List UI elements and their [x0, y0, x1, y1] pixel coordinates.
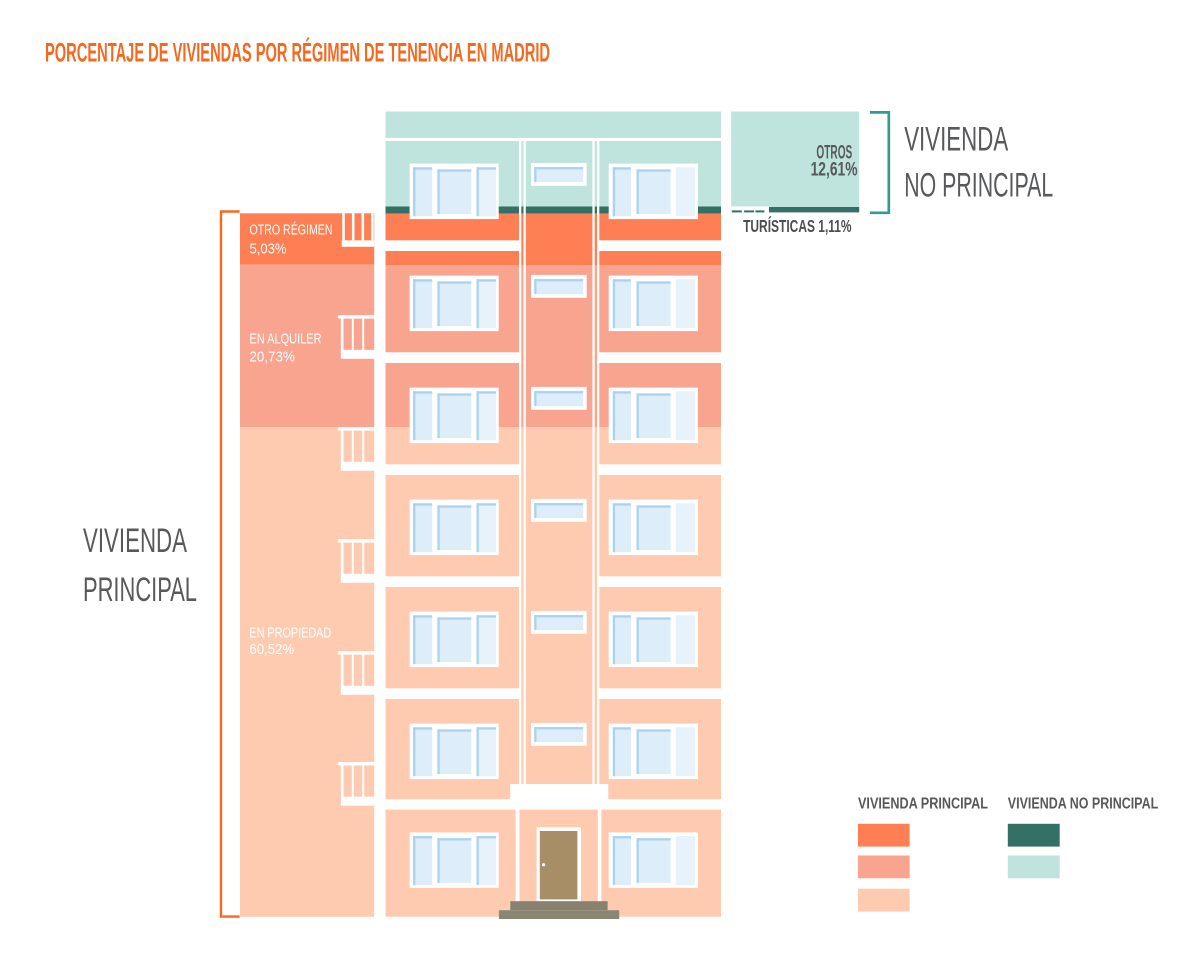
svg-text:VIVIENDA: VIVIENDA [83, 522, 187, 560]
svg-text:NO PRINCIPAL: NO PRINCIPAL [904, 166, 1053, 204]
svg-text:OTRO RÉGIMEN: OTRO RÉGIMEN [250, 222, 333, 239]
svg-text:PRINCIPAL: PRINCIPAL [83, 571, 197, 609]
svg-text:EN PROPIEDAD: EN PROPIEDAD [249, 625, 331, 642]
svg-text:VIVIENDA NO PRINCIPAL: VIVIENDA NO PRINCIPAL [1008, 796, 1159, 813]
svg-text:20,73%: 20,73% [249, 348, 294, 365]
svg-text:TURÍSTICAS 1,11%: TURÍSTICAS 1,11% [743, 215, 852, 236]
svg-text:12,61%: 12,61% [811, 159, 858, 180]
svg-text:VIVIENDA: VIVIENDA [904, 120, 1008, 158]
svg-text:5,03%: 5,03% [250, 241, 287, 258]
svg-text:PORCENTAJE DE VIVIENDAS POR RÉ: PORCENTAJE DE VIVIENDAS POR RÉGIMEN DE T… [45, 37, 550, 67]
svg-text:EN ALQUILER: EN ALQUILER [249, 331, 321, 348]
svg-text:60,52%: 60,52% [249, 641, 294, 658]
svg-text:VIVIENDA PRINCIPAL: VIVIENDA PRINCIPAL [858, 796, 988, 813]
